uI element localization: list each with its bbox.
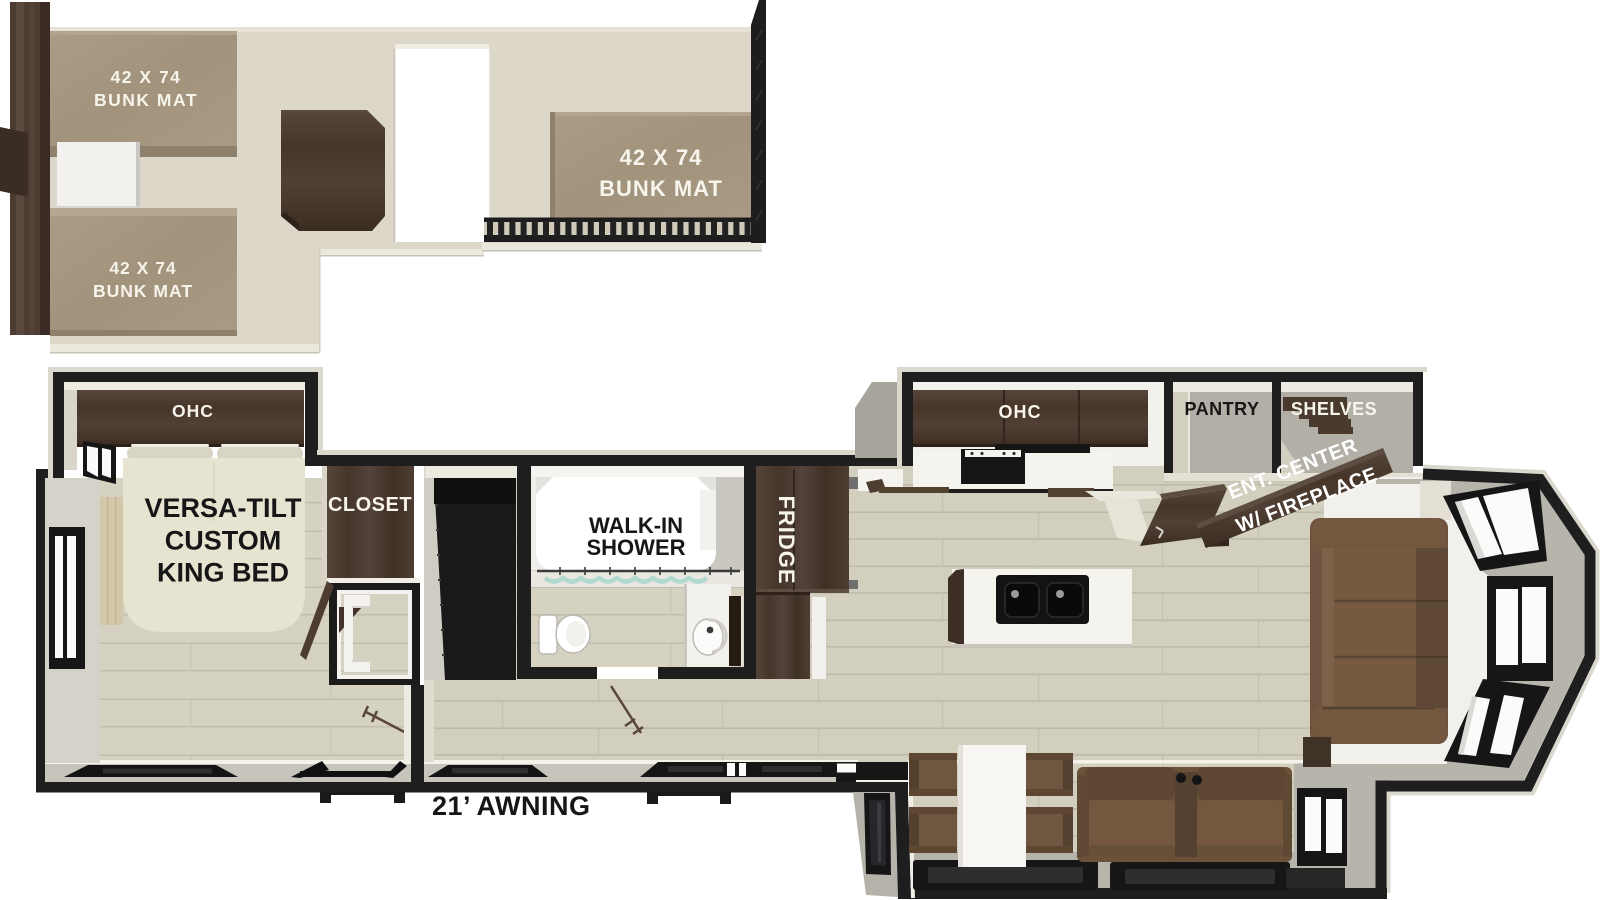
svg-text:CUSTOM: CUSTOM [165,526,282,556]
svg-text:BUNK MAT: BUNK MAT [94,90,198,110]
svg-text:KING BED: KING BED [157,558,289,588]
svg-text:SHELVES: SHELVES [1291,399,1377,419]
svg-text:42 X 74: 42 X 74 [111,67,182,87]
svg-text:42 X 74: 42 X 74 [620,145,703,170]
svg-text:PANTRY: PANTRY [1185,399,1260,419]
svg-text:BUNK MAT: BUNK MAT [93,281,193,301]
svg-text:SHOWER: SHOWER [587,535,686,560]
svg-text:FRIDGE: FRIDGE [774,495,799,584]
svg-text:21’ AWNING: 21’ AWNING [432,791,591,821]
svg-text:42 X 74: 42 X 74 [109,258,176,278]
svg-text:BUNK MAT: BUNK MAT [599,176,723,201]
svg-text:OHC: OHC [999,402,1042,422]
svg-text:OHC: OHC [172,401,214,421]
svg-text:VERSA-TILT: VERSA-TILT [145,493,302,523]
svg-text:CLOSET: CLOSET [328,494,412,516]
